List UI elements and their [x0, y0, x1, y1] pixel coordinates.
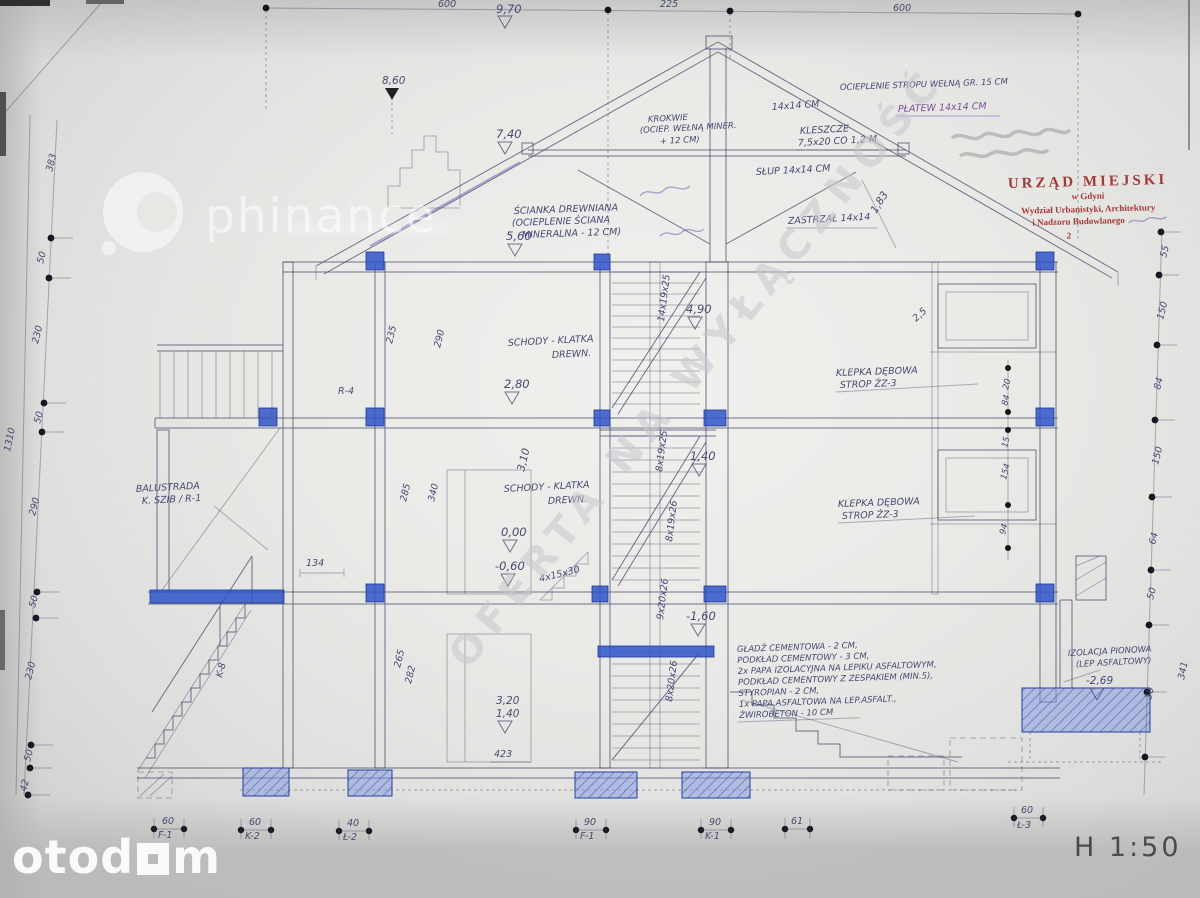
phinance-wordmark: phinance [205, 189, 437, 244]
dim-top-2: 225 [660, 0, 678, 10]
label-schody-1a: SCHODY - KLATKA [508, 334, 594, 349]
dim-misc-285: 285 [398, 482, 413, 502]
dim-left-8: 50 [22, 748, 36, 762]
otodom-square-icon [137, 843, 169, 875]
floor-spec-block: GŁADŹ CEMENTOWA - 2 CM, PODKŁAD CEMENTOW… [735, 636, 939, 722]
footing-dim-l3: 60 Ł-3 [1011, 805, 1046, 831]
footing-width: 40 [347, 818, 359, 829]
label-krokwie-3: + 12 CM) [660, 135, 700, 147]
footing-width: 90 [709, 817, 721, 828]
stair-dim-1: 14x19x25 [656, 274, 673, 323]
dim-misc-134: 134 [306, 558, 324, 569]
dim-right-2: 150 [1155, 300, 1170, 320]
dim-inner-1: 20 [1001, 378, 1013, 391]
dim-left-1: 383 [44, 152, 59, 172]
elev-740: 7,40 [496, 127, 522, 141]
otodom-wordmark-prefix: otod [12, 830, 134, 884]
dim-left-3: 230 [30, 324, 45, 344]
footing-dim-k2: 60 K-2 [238, 817, 274, 842]
footing-name: K-2 [245, 831, 260, 842]
label-izolacja-2: (LEP ASFALTOWY) [1076, 656, 1152, 670]
elev-280: 2,80 [504, 377, 530, 391]
footing-dimensions: 60 F-1 60 K-2 40 Ł-2 90 F-1 [151, 805, 1046, 843]
label-scianka-3: MINERALNA - 12 CM) [522, 227, 622, 241]
dim-misc-282: 282 [403, 664, 418, 684]
phinance-logo-icon [95, 168, 191, 264]
elev-970: 9,70 [496, 2, 522, 16]
foundation-blocks [243, 688, 1150, 798]
stamp-line-1: URZĄD MIEJSKI [1008, 172, 1168, 192]
dim-misc-235: 235 [384, 324, 399, 344]
footing-width: 61 [791, 816, 803, 827]
dim-left-7: 230 [23, 660, 38, 680]
footing-width: 60 [1021, 805, 1033, 816]
dim-misc-423: 423 [494, 749, 512, 760]
dim-misc-25: 2,5 [911, 306, 930, 324]
dim-inner-4: 154 [999, 463, 1013, 481]
dimension-chain-left: 383 50 230 50 290 50 230 50 42 1310 [2, 120, 73, 798]
label-slup: SŁUP 14x14 CM [756, 163, 831, 178]
phinance-tagline-blur [288, 222, 448, 235]
footing-name: F-1 [580, 831, 594, 842]
label-klepka-1a: KLEPKA DĘBOWA [836, 365, 918, 379]
stair-dim-5: 8x20x26 [664, 660, 680, 703]
dim-left-5: 290 [27, 496, 42, 516]
elev-860: 8,60 [382, 75, 406, 87]
dim-misc-340: 340 [426, 482, 441, 502]
elev-320: 3,20 [496, 695, 520, 707]
dim-right-6: 50 [1145, 586, 1159, 600]
dim-inner-3: 15 [1000, 436, 1012, 449]
stamp-line-2: w Gdyni [1071, 191, 1105, 202]
dim-inner-2: 84 [1000, 394, 1012, 407]
dim-misc-310: 3,10 [515, 447, 532, 473]
dim-right-5: 64 [1147, 531, 1161, 545]
label-r4: R-4 [338, 386, 354, 397]
dim-left-9: 42 [18, 778, 32, 792]
balcony-railing [157, 345, 283, 592]
label-klepka-2a: KLEPKA DĘBOWA [838, 496, 920, 510]
scale-label: H 1:50 [1074, 832, 1182, 863]
otodom-wordmark-suffix: m [172, 830, 221, 884]
scanned-blueprint-page: 600 225 600 383 50 230 50 290 50 230 50 … [0, 0, 1200, 898]
floor-slabs [137, 262, 1060, 790]
elev-minus269: -2,69 [1086, 675, 1113, 687]
dim-misc-290: 290 [432, 328, 447, 348]
stamp-line-3: Wydział Urbanistyki, Architektury [1021, 202, 1156, 216]
footing-dim-l2: 40 Ł-2 [336, 818, 372, 843]
elev-140b: 1,40 [496, 708, 520, 720]
dim-right-4: 150 [1150, 445, 1165, 465]
dim-misc-183: 1,83 [868, 189, 891, 215]
stair-dim-4: 9x20x26 [655, 578, 671, 621]
stamp-line-4: i Nadzoru Budowlanego [1032, 215, 1125, 227]
dim-left-total: 1310 [2, 427, 18, 453]
elev-140: 1,40 [690, 449, 716, 463]
dim-left-2: 50 [35, 250, 49, 264]
elev-minus160: -1,60 [686, 609, 716, 623]
dim-left-4: 50 [32, 410, 46, 424]
label-schody-1b: DREWN. [552, 348, 592, 361]
otodom-watermark: otodm [12, 830, 221, 884]
footing-dim-61: 61 [782, 816, 813, 838]
dim-misc-265: 265 [392, 648, 407, 668]
dim-right-1: 55 [1158, 244, 1172, 258]
dimension-chain-inner-right: 20 84 15 154 94 [998, 360, 1013, 560]
stamp-line-5: 2 [1067, 230, 1072, 240]
phinance-watermark: phinance [95, 168, 437, 264]
dim-right-7: 30 [1143, 686, 1157, 700]
footing-name: K-1 [705, 831, 720, 842]
elev-000: 0,00 [501, 525, 527, 539]
sheet-border-lines [0, 2, 102, 795]
dim-top-1: 600 [438, 0, 456, 10]
dim-left-6: 50 [27, 594, 41, 608]
stamp-signature-scribble [1128, 217, 1166, 223]
dim-right-total: 341 [1176, 661, 1191, 681]
footing-width: 60 [162, 816, 174, 827]
footing-dim-k1: 90 K-1 [698, 817, 734, 842]
label-k8: K-8 [214, 662, 228, 679]
footing-width: 60 [249, 817, 261, 828]
footing-name: Ł-2 [342, 832, 357, 843]
footing-name: Ł-3 [1016, 820, 1031, 831]
footing-dim-f1b: 90 F-1 [573, 817, 609, 842]
label-belka: 14x14 CM [771, 99, 819, 113]
dim-top-3: 600 [893, 3, 911, 14]
dim-inner-5: 94 [998, 523, 1010, 536]
label-balustrada-2: K. SZIB / R-1 [142, 493, 202, 507]
elev-490: 4,90 [686, 302, 712, 316]
dim-right-3: 84 [1152, 376, 1166, 390]
footing-width: 90 [584, 817, 596, 828]
